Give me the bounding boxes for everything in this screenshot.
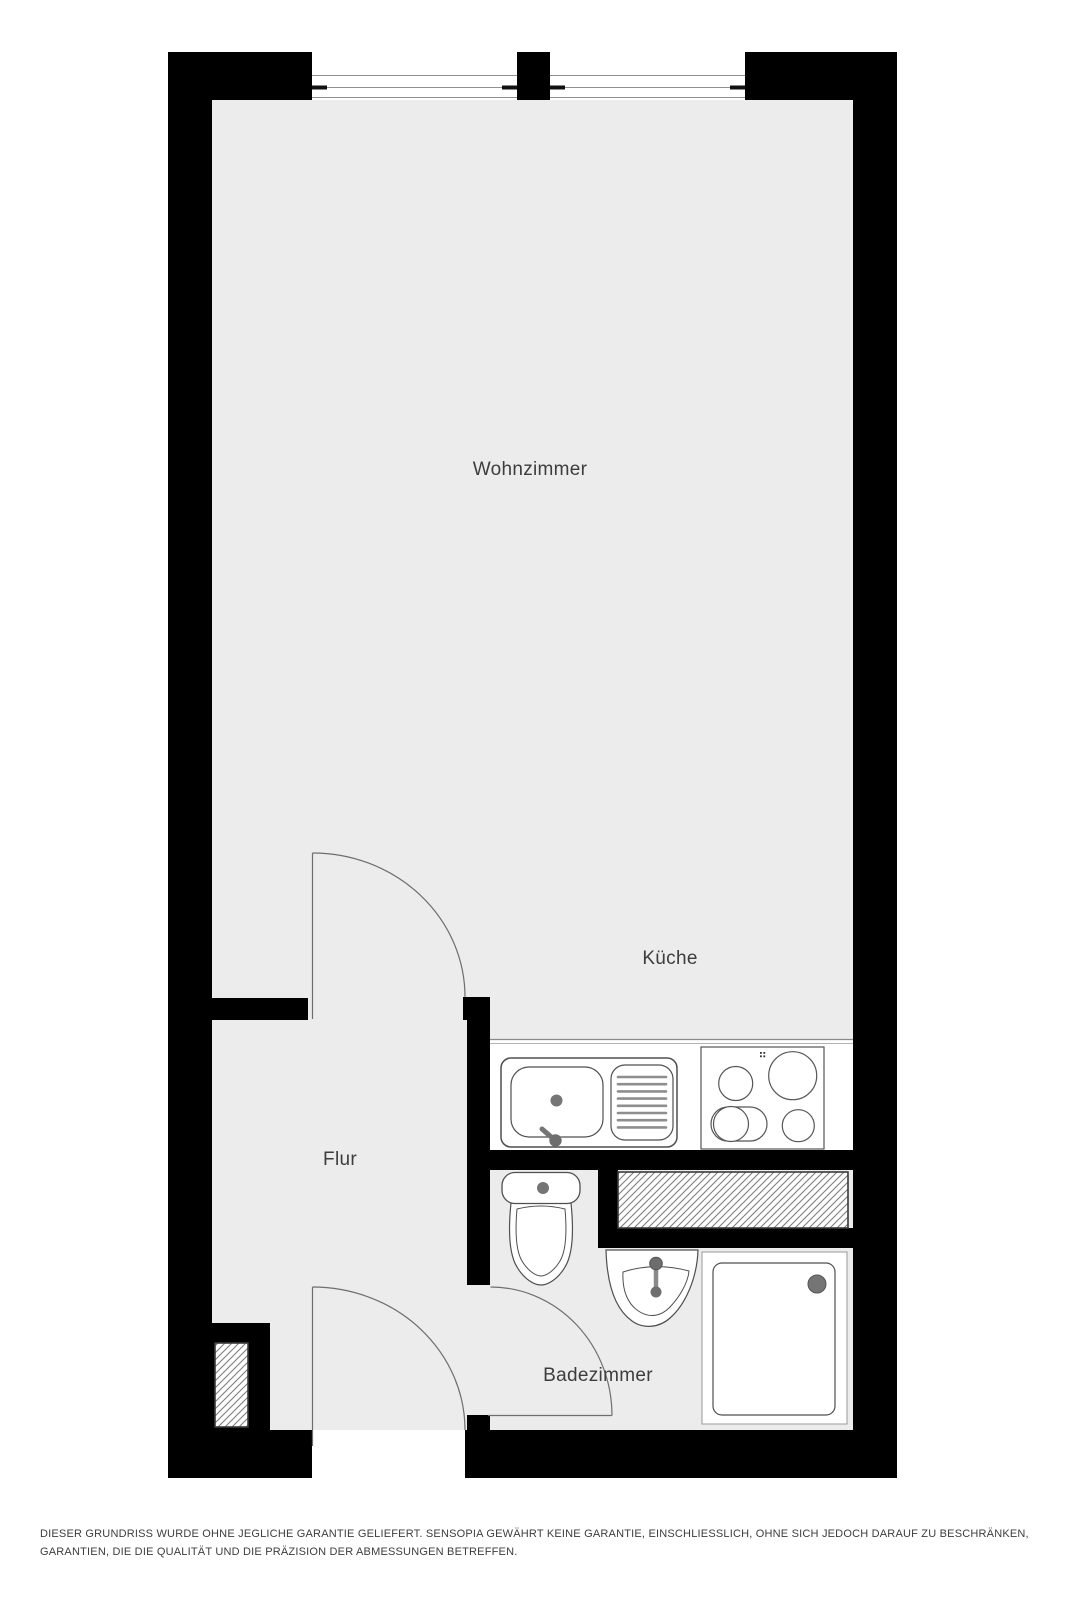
room-label-bathroom: Badezimmer xyxy=(543,1365,653,1387)
drainboard-icon xyxy=(611,1065,673,1140)
entry-duct-hatch-icon xyxy=(215,1343,248,1427)
duct-hatch-icon xyxy=(618,1172,848,1228)
toilet-icon xyxy=(502,1173,580,1286)
disclaimer-text: DIESER GRUNDRISS WURDE OHNE JEGLICHE GAR… xyxy=(40,1526,1042,1561)
room-label-kitchen: Küche xyxy=(642,948,697,970)
stove-icon xyxy=(701,1047,824,1149)
window-icon xyxy=(550,76,745,98)
shower-icon xyxy=(702,1252,847,1424)
room-label-living-room: Wohnzimmer xyxy=(473,459,588,481)
room-label-hallway: Flur xyxy=(323,1149,357,1171)
floorplan-canvas: Wohnzimmer Küche Flur Badezimmer DIESER … xyxy=(0,0,1067,1600)
window-icon xyxy=(312,76,517,98)
washbasin-icon xyxy=(606,1250,698,1326)
kitchen-sink-icon xyxy=(501,1058,677,1147)
fixtures-overlay xyxy=(0,0,1067,1600)
